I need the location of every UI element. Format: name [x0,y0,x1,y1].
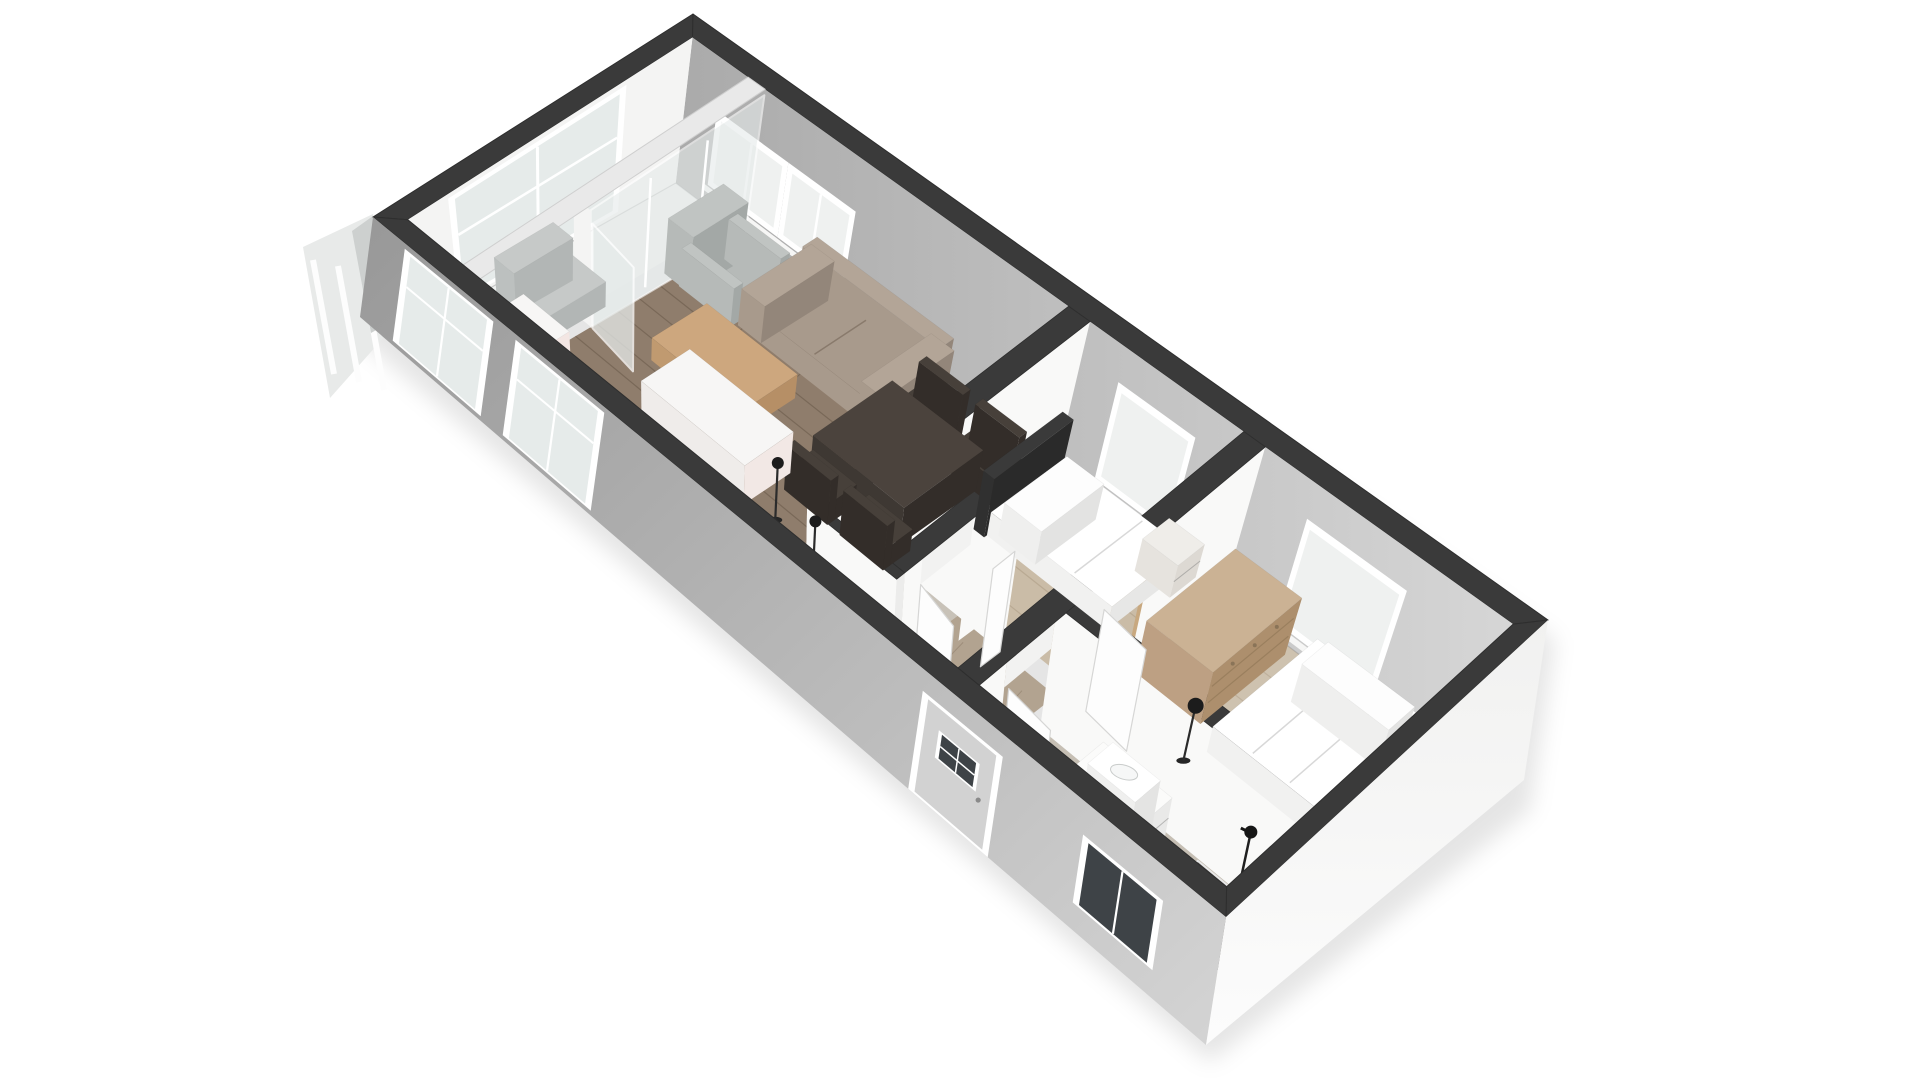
front-door-handle [976,797,981,802]
dresser-knob [1275,625,1279,629]
floor-plan-page: 3D isometric floor plan of a small apart… [0,0,1920,1080]
bedroom2-floor-lamp-shade [1188,698,1204,714]
floor-plan-svg [0,0,1920,1080]
dresser-knob [1253,643,1257,647]
floor-lamp-1-shade [772,457,784,469]
dresser-knob [1231,662,1235,666]
floor-lamp-2-shade [809,515,821,527]
